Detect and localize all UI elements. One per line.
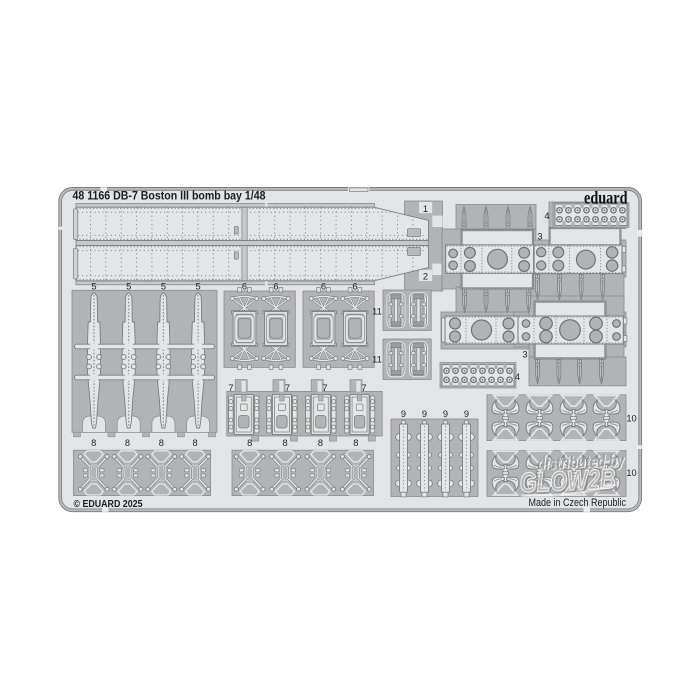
svg-text:6: 6 — [352, 281, 357, 291]
svg-text:5: 5 — [161, 281, 166, 291]
svg-text:7: 7 — [322, 383, 327, 393]
svg-text:5: 5 — [91, 281, 96, 291]
svg-text:3: 3 — [522, 350, 527, 360]
svg-text:11: 11 — [372, 307, 382, 317]
svg-text:7: 7 — [361, 383, 366, 393]
svg-text:8: 8 — [247, 438, 252, 448]
svg-text:9: 9 — [422, 409, 427, 419]
svg-text:© EDUARD 2025: © EDUARD 2025 — [74, 499, 143, 510]
svg-text:48 1166 DB-7 Boston III bomb b: 48 1166 DB-7 Boston III bomb bay 1/48 — [73, 188, 266, 202]
svg-text:6: 6 — [242, 281, 247, 291]
svg-text:8: 8 — [125, 438, 130, 448]
svg-text:5: 5 — [126, 281, 131, 291]
svg-text:8: 8 — [353, 438, 358, 448]
svg-text:5: 5 — [196, 281, 201, 291]
svg-text:9: 9 — [401, 409, 406, 419]
svg-text:11: 11 — [372, 355, 382, 365]
svg-text:9: 9 — [464, 409, 469, 419]
svg-text:4: 4 — [515, 372, 520, 382]
svg-text:8: 8 — [283, 438, 288, 448]
svg-text:Made in Czech Republic: Made in Czech Republic — [529, 497, 627, 509]
svg-text:6: 6 — [273, 281, 278, 291]
svg-text:eduard: eduard — [584, 188, 628, 208]
svg-text:2: 2 — [423, 272, 428, 282]
svg-text:7: 7 — [228, 383, 233, 393]
svg-text:4: 4 — [544, 211, 549, 221]
svg-text:8: 8 — [318, 438, 323, 448]
svg-text:10: 10 — [626, 468, 636, 478]
svg-text:8: 8 — [159, 438, 164, 448]
svg-text:3: 3 — [537, 232, 542, 242]
svg-text:9: 9 — [443, 409, 448, 419]
svg-text:8: 8 — [193, 438, 198, 448]
svg-text:6: 6 — [321, 281, 326, 291]
svg-text:1: 1 — [423, 204, 428, 214]
svg-text:10: 10 — [626, 413, 636, 423]
svg-text:8: 8 — [91, 438, 96, 448]
svg-text:7: 7 — [285, 383, 290, 393]
